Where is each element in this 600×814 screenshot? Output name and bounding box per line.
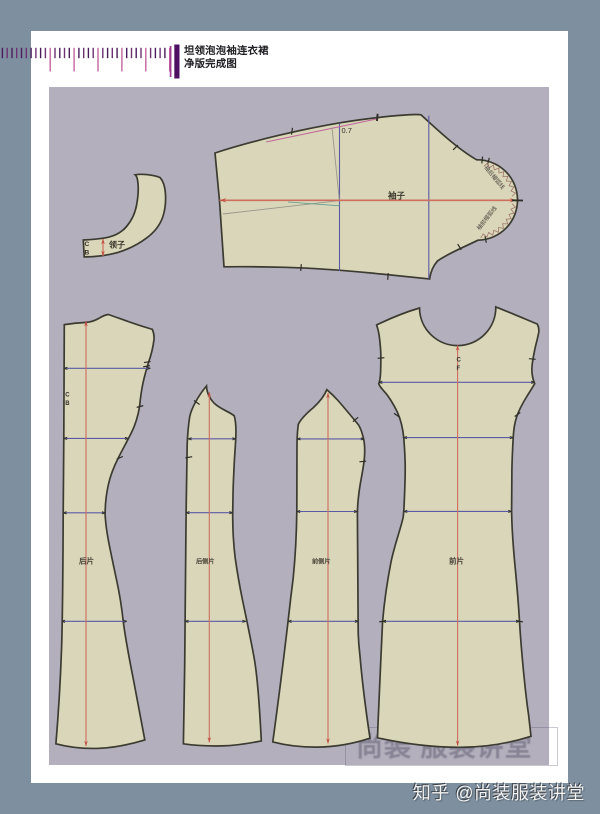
svg-text:领子: 领子 [109,240,125,250]
svg-text:袖子: 袖子 [387,191,406,201]
svg-text:B: B [65,401,70,407]
svg-text:前片: 前片 [449,556,464,566]
svg-text:0.7: 0.7 [342,126,352,135]
svg-text:后片: 后片 [79,556,94,566]
svg-text:B: B [85,250,90,257]
svg-text:C: C [65,393,70,399]
svg-text:前侧片: 前侧片 [312,558,331,566]
svg-text:C: C [85,241,90,248]
svg-text:后侧片: 后侧片 [196,558,215,566]
svg-text:F: F [457,366,461,372]
svg-text:C: C [457,358,462,364]
